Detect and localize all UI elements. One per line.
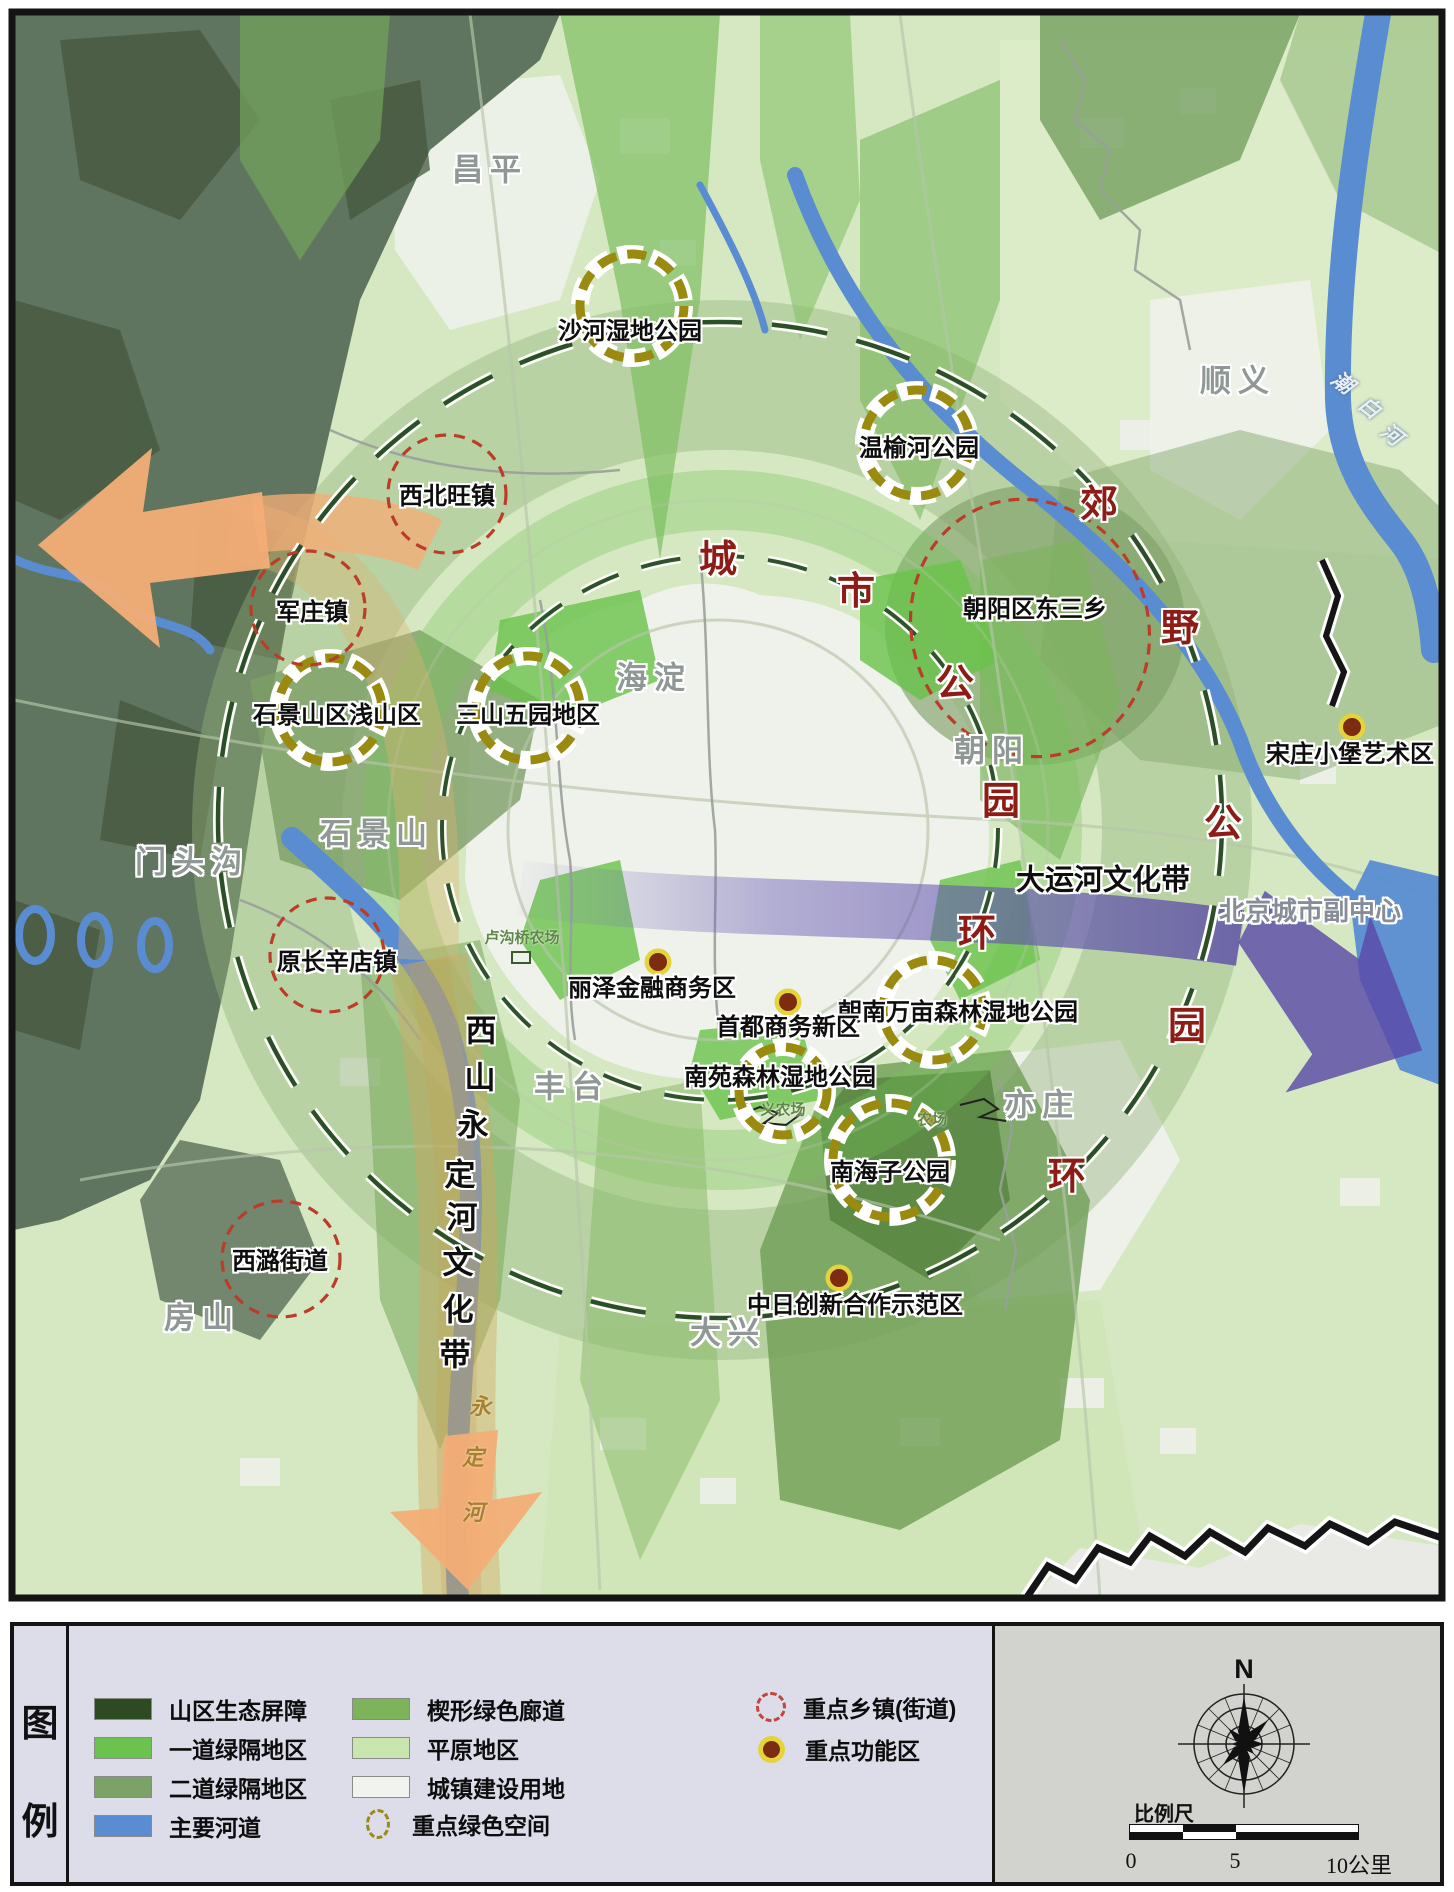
scale-tick: 5: [1230, 1848, 1241, 1874]
legend-label: 重点乡镇(街道): [803, 1690, 956, 1724]
legend-item-mountain: 山区生态屏障: [94, 1696, 307, 1722]
legend-item-key-function: 重点功能区: [756, 1736, 920, 1762]
scale-tick: 10公里: [1326, 1848, 1392, 1880]
functional-dot: [830, 1269, 848, 1287]
legend-item-first-belt: 一道绿隔地区: [94, 1735, 307, 1761]
compass-rose: N: [1174, 1656, 1314, 1816]
legend-label: 二道绿隔地区: [169, 1770, 307, 1804]
scale-label: 比例尺: [1134, 1798, 1194, 1827]
swatch-second-belt: [94, 1776, 152, 1798]
functional-dot: [779, 993, 797, 1011]
legend-panel: 图 例 山区生态屏障 一道绿隔地区 二道绿隔地区 主要河道 楔形绿色廊道 平原地…: [10, 1622, 1444, 1886]
legend-map-tools: N: [992, 1626, 1440, 1882]
legend-item-green-space: 重点绿色空间: [352, 1811, 550, 1837]
legend-item-key-town: 重点乡镇(街道): [756, 1694, 956, 1720]
legend-label: 主要河道: [169, 1809, 261, 1843]
planning-map-page: 沙河湿地公园温榆河公园石景山区浅山区三山五园地区朝南万亩森林湿地公园南苑森林湿地…: [0, 0, 1454, 1892]
green-space-icon: [366, 1809, 390, 1839]
legend-item-second-belt: 二道绿隔地区: [94, 1774, 307, 1800]
swatch-plain: [352, 1737, 410, 1759]
swatch-urban: [352, 1776, 410, 1798]
legend-label: 平原地区: [427, 1731, 519, 1765]
legend-item-rivers: 主要河道: [94, 1813, 261, 1839]
functional-dot: [649, 953, 667, 971]
compass-petals: [1219, 1696, 1271, 1794]
legend-title: 图 例: [14, 1626, 69, 1882]
legend-label: 一道绿隔地区: [169, 1731, 307, 1765]
legend-label: 楔形绿色廊道: [427, 1692, 565, 1726]
scale-tick: 0: [1126, 1848, 1137, 1874]
functional-dot: [1343, 718, 1361, 736]
swatch-mountain: [94, 1698, 152, 1720]
key-town-icon: [756, 1692, 786, 1722]
legend-label: 山区生态屏障: [169, 1692, 307, 1726]
legend-item-plain: 平原地区: [352, 1735, 519, 1761]
legend-title-char: 图: [22, 1693, 59, 1747]
legend-label: 城镇建设用地: [427, 1770, 565, 1804]
map-graphic: [0, 0, 1454, 1610]
legend-title-char: 例: [22, 1791, 59, 1845]
legend-label: 重点绿色空间: [412, 1807, 550, 1841]
compass-north-label: N: [1234, 1656, 1254, 1684]
swatch-rivers: [94, 1815, 152, 1837]
map-canvas: 沙河湿地公园温榆河公园石景山区浅山区三山五园地区朝南万亩森林湿地公园南苑森林湿地…: [0, 0, 1454, 1610]
scale-bar: [1129, 1824, 1359, 1840]
swatch-wedge: [352, 1698, 410, 1720]
key-function-icon: [763, 1741, 780, 1758]
swatch-first-belt: [94, 1737, 152, 1759]
legend-item-wedge: 楔形绿色廊道: [352, 1696, 565, 1722]
legend-item-urban: 城镇建设用地: [352, 1774, 565, 1800]
legend-label: 重点功能区: [805, 1732, 920, 1766]
